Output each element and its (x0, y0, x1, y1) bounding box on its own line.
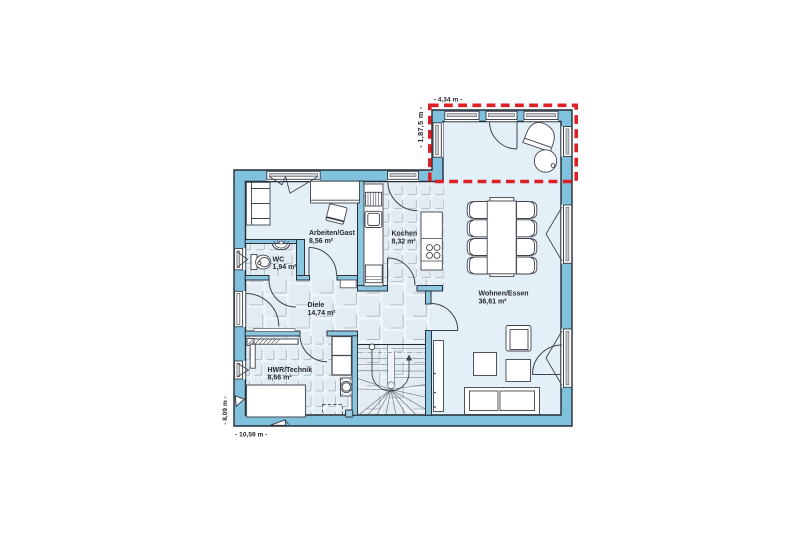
svg-text:Diele: Diele (308, 302, 325, 309)
svg-text:Arbeiten/Gast: Arbeiten/Gast (309, 230, 356, 237)
svg-text:WC: WC (273, 257, 285, 264)
svg-text:HWR/Technik: HWR/Technik (268, 367, 313, 374)
svg-text:8,32 m²: 8,32 m² (392, 238, 417, 245)
svg-text:14,74 m²: 14,74 m² (308, 310, 337, 317)
svg-text:Kochen: Kochen (392, 231, 418, 238)
svg-text:Wohnen/Essen: Wohnen/Essen (479, 291, 529, 298)
svg-text:8,56 m²: 8,56 m² (309, 238, 334, 245)
svg-text:1,94 m²: 1,94 m² (273, 264, 298, 271)
svg-text:36,61 m²: 36,61 m² (479, 298, 508, 305)
svg-text:- 4,34 m -: - 4,34 m - (434, 97, 463, 104)
svg-text:8,66 m²: 8,66 m² (268, 375, 293, 382)
svg-text:- 10,59 m -: - 10,59 m - (235, 432, 267, 439)
svg-text:- 1,87,5 m -: - 1,87,5 m - (416, 106, 425, 148)
svg-text:- 8,09 m -: - 8,09 m - (222, 396, 229, 425)
